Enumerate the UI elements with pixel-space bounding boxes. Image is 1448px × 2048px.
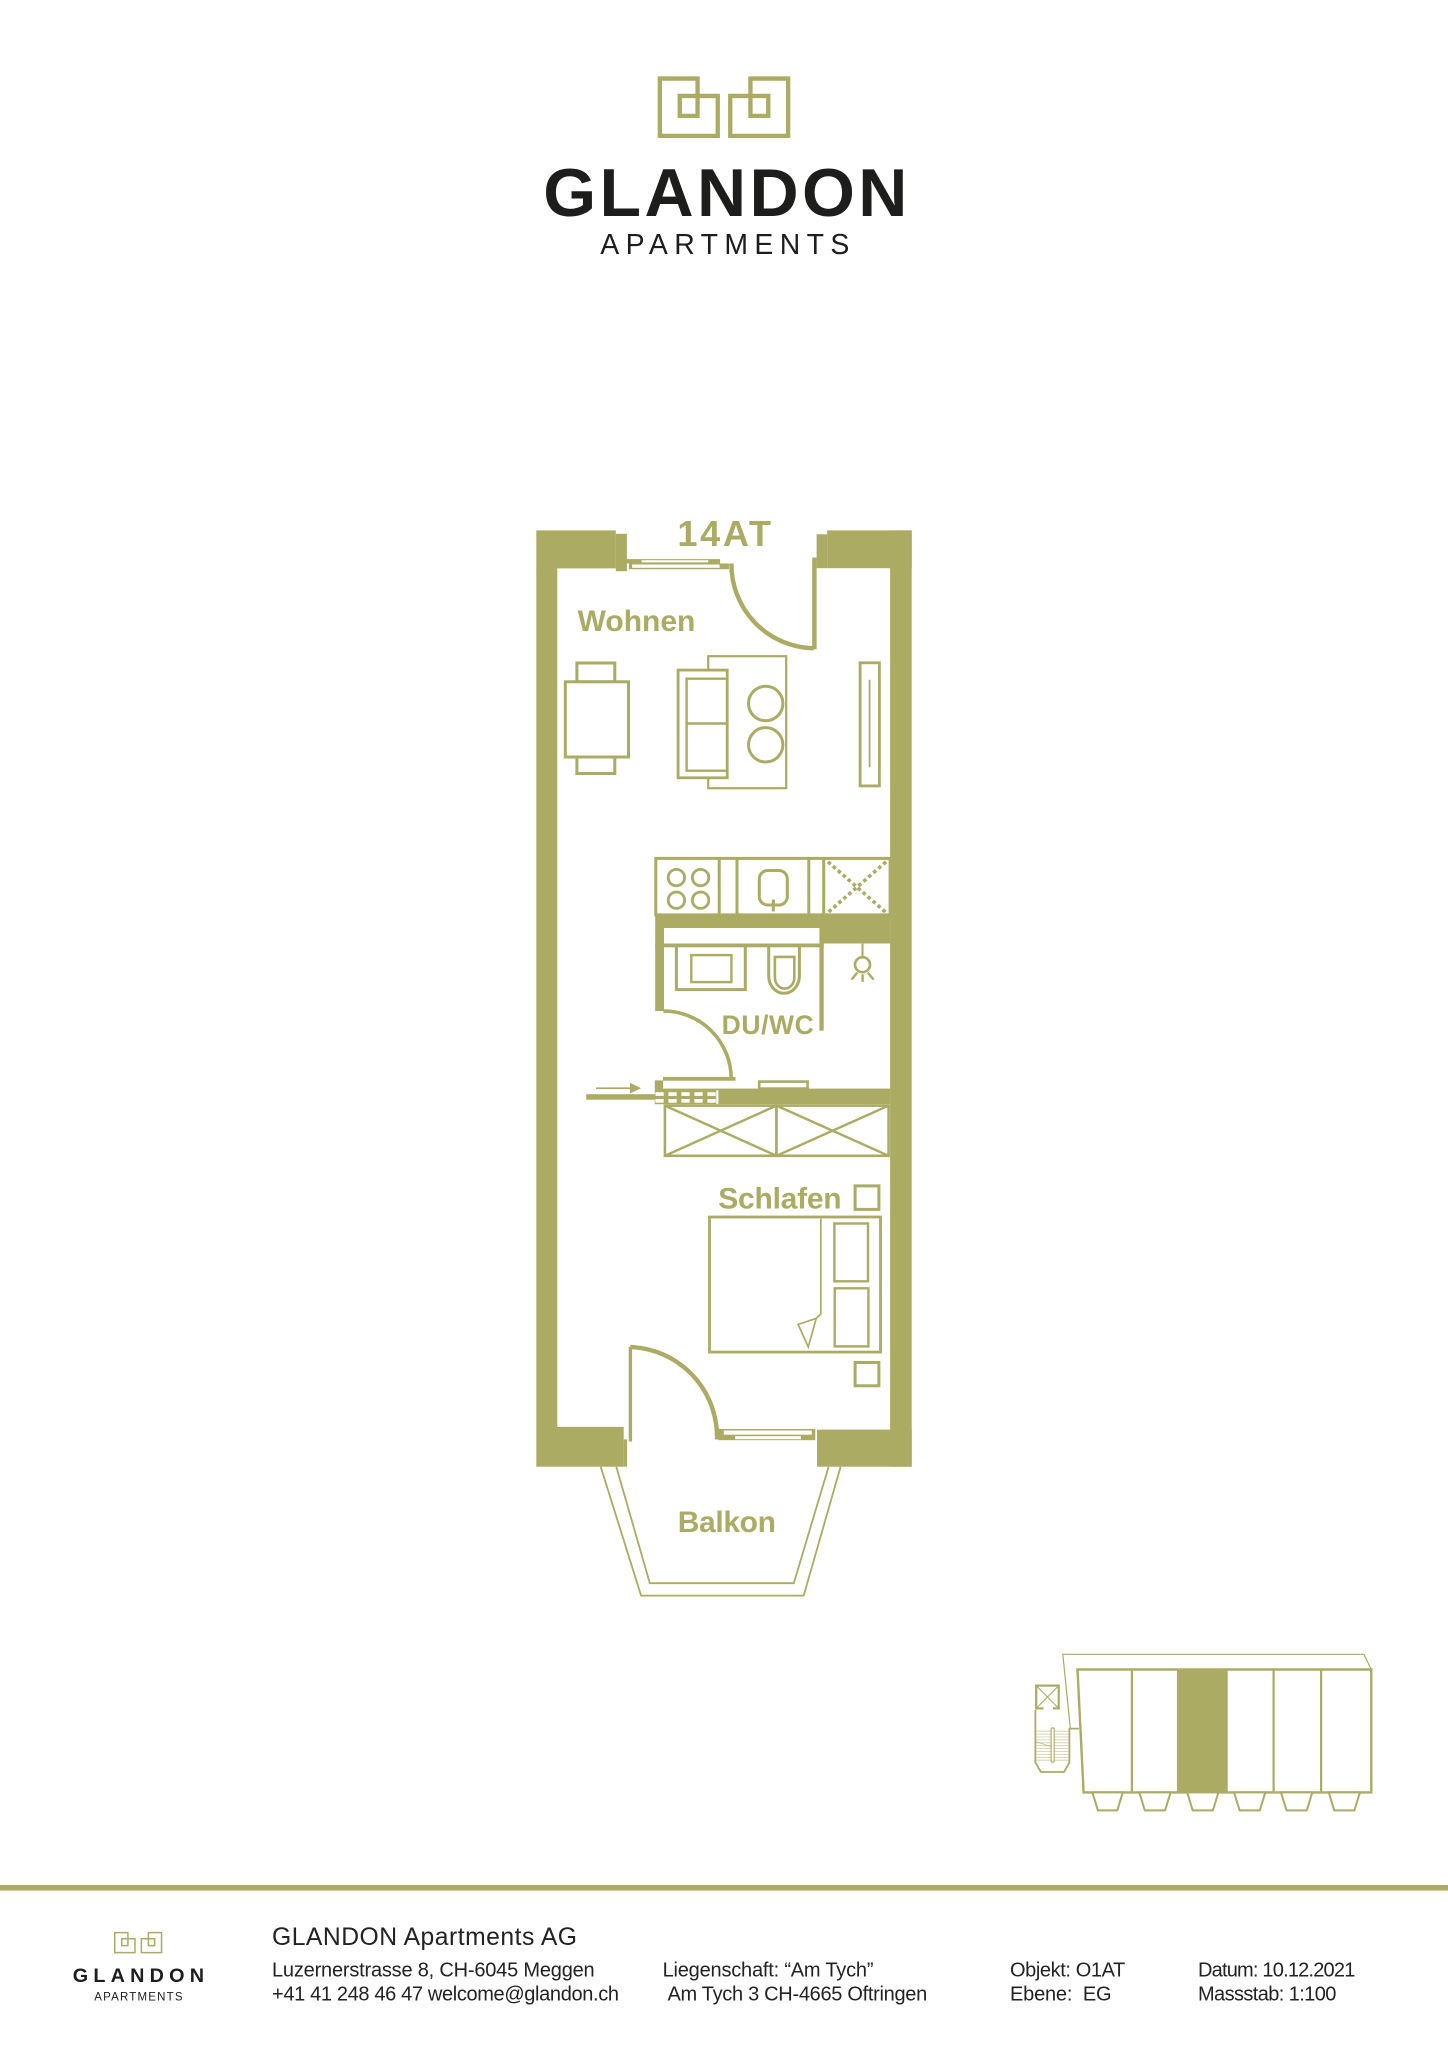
svg-text:14AT: 14AT [677, 513, 773, 554]
svg-text:Massstab: 1:100: Massstab: 1:100 [1198, 1984, 1336, 2006]
svg-text:DU/WC: DU/WC [722, 1010, 815, 1040]
svg-text:Am Tych 3 CH-4665 Oftringen: Am Tych 3 CH-4665 Oftringen [668, 1984, 927, 2006]
svg-text:Balkon: Balkon [678, 1506, 776, 1539]
svg-text:+41 41 248 46 47 welcome@gland: +41 41 248 46 47 welcome@glandon.ch [272, 1984, 619, 2006]
svg-text:GLANDON: GLANDON [73, 1965, 209, 1987]
svg-text:Objekt: O1AT: Objekt: O1AT [1010, 1960, 1125, 1982]
svg-text:Schlafen: Schlafen [718, 1183, 841, 1216]
svg-text:Luzernerstrasse 8, CH-6045 Meg: Luzernerstrasse 8, CH-6045 Meggen [272, 1960, 594, 1982]
svg-text:Liegenschaft: “Am Tych”: Liegenschaft: “Am Tych” [663, 1960, 874, 1982]
svg-text:APARTMENTS: APARTMENTS [94, 1991, 184, 2003]
svg-text:GLANDON: GLANDON [543, 155, 911, 231]
svg-text:GLANDON Apartments AG: GLANDON Apartments AG [272, 1924, 577, 1951]
svg-text:APARTMENTS: APARTMENTS [600, 229, 855, 261]
svg-text:Datum: 10.12.2021: Datum: 10.12.2021 [1198, 1960, 1355, 1982]
svg-text:Wohnen: Wohnen [578, 605, 696, 638]
svg-text:Ebene: EG: Ebene: EG [1010, 1984, 1111, 2006]
